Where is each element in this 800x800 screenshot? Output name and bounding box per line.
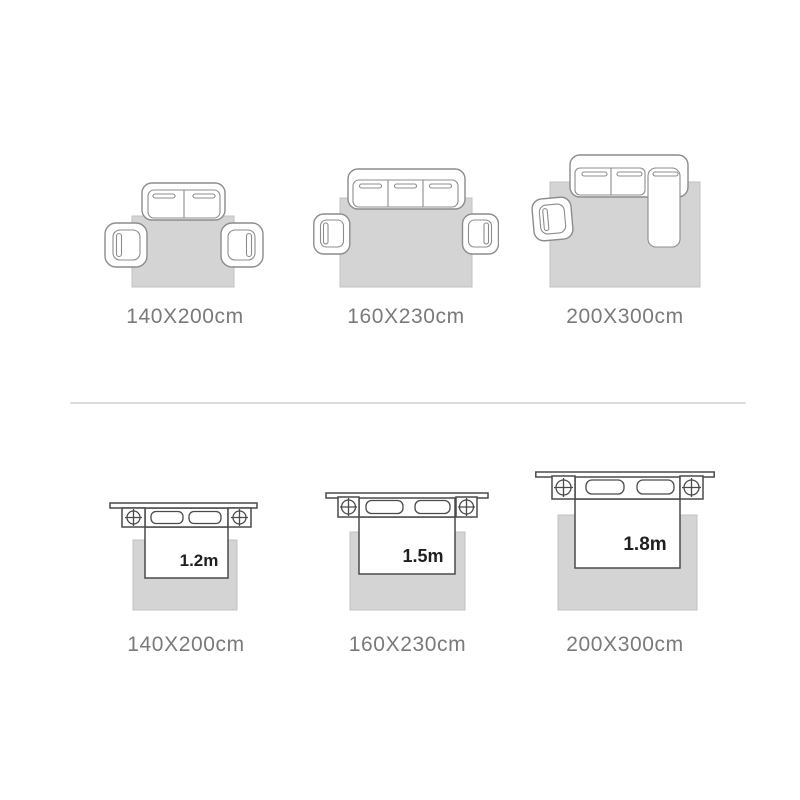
three-seat-sofa-rug-diagram <box>313 155 499 305</box>
rug-size-caption: 200X300cm <box>530 304 720 330</box>
rug-size-caption: 160X230cm <box>320 632 495 658</box>
armchair-icon <box>463 214 499 254</box>
three-seat-sofa-icon <box>348 169 465 209</box>
nightstand-icon <box>338 497 359 517</box>
two-seat-sofa-icon <box>142 183 225 220</box>
rug-size-caption: 160X230cm <box>313 304 499 330</box>
nightstand-icon <box>122 508 145 527</box>
bed-width-label: 1.2m <box>180 551 219 570</box>
nightstand-icon <box>680 476 703 499</box>
rug-size-guide: 140X200cm <box>0 0 800 800</box>
nightstand-icon <box>228 508 251 527</box>
section-divider <box>70 402 746 404</box>
bed-rug-diagram: 1.8m <box>535 460 715 632</box>
sofa-rug-cell-200x300: 200X300cm <box>530 148 720 330</box>
bed-rug-cell-160x230: 1.5m 160X230cm <box>320 480 495 658</box>
sofa-rug-cell-160x230: 160X230cm <box>313 155 499 330</box>
rug-size-caption: 140X200cm <box>101 632 271 658</box>
armchair-icon <box>531 196 574 241</box>
bed-width-label: 1.8m <box>623 534 666 555</box>
rug <box>340 198 472 287</box>
bed-width-label: 1.5m <box>402 546 443 566</box>
bed-rug-cell-200x300: 1.8m 200X300cm <box>535 460 715 658</box>
two-seat-sofa-rug-diagram <box>95 160 275 305</box>
bed-rug-diagram: 1.5m <box>320 480 495 632</box>
rug-size-caption: 140X200cm <box>95 304 275 330</box>
armchair-icon <box>314 214 350 254</box>
bed-rug-cell-140x200: 1.2m 140X200cm <box>101 495 271 658</box>
nightstand-icon <box>456 497 477 517</box>
nightstand-icon <box>552 476 575 499</box>
bed-rug-diagram: 1.2m <box>101 495 271 630</box>
sofa-rug-cell-140x200: 140X200cm <box>95 160 275 330</box>
rug-size-caption: 200X300cm <box>535 632 715 658</box>
armchair-icon <box>221 223 263 267</box>
chaise-lounge <box>648 168 680 247</box>
sectional-sofa-rug-diagram <box>530 148 720 303</box>
armchair-icon <box>105 223 147 267</box>
